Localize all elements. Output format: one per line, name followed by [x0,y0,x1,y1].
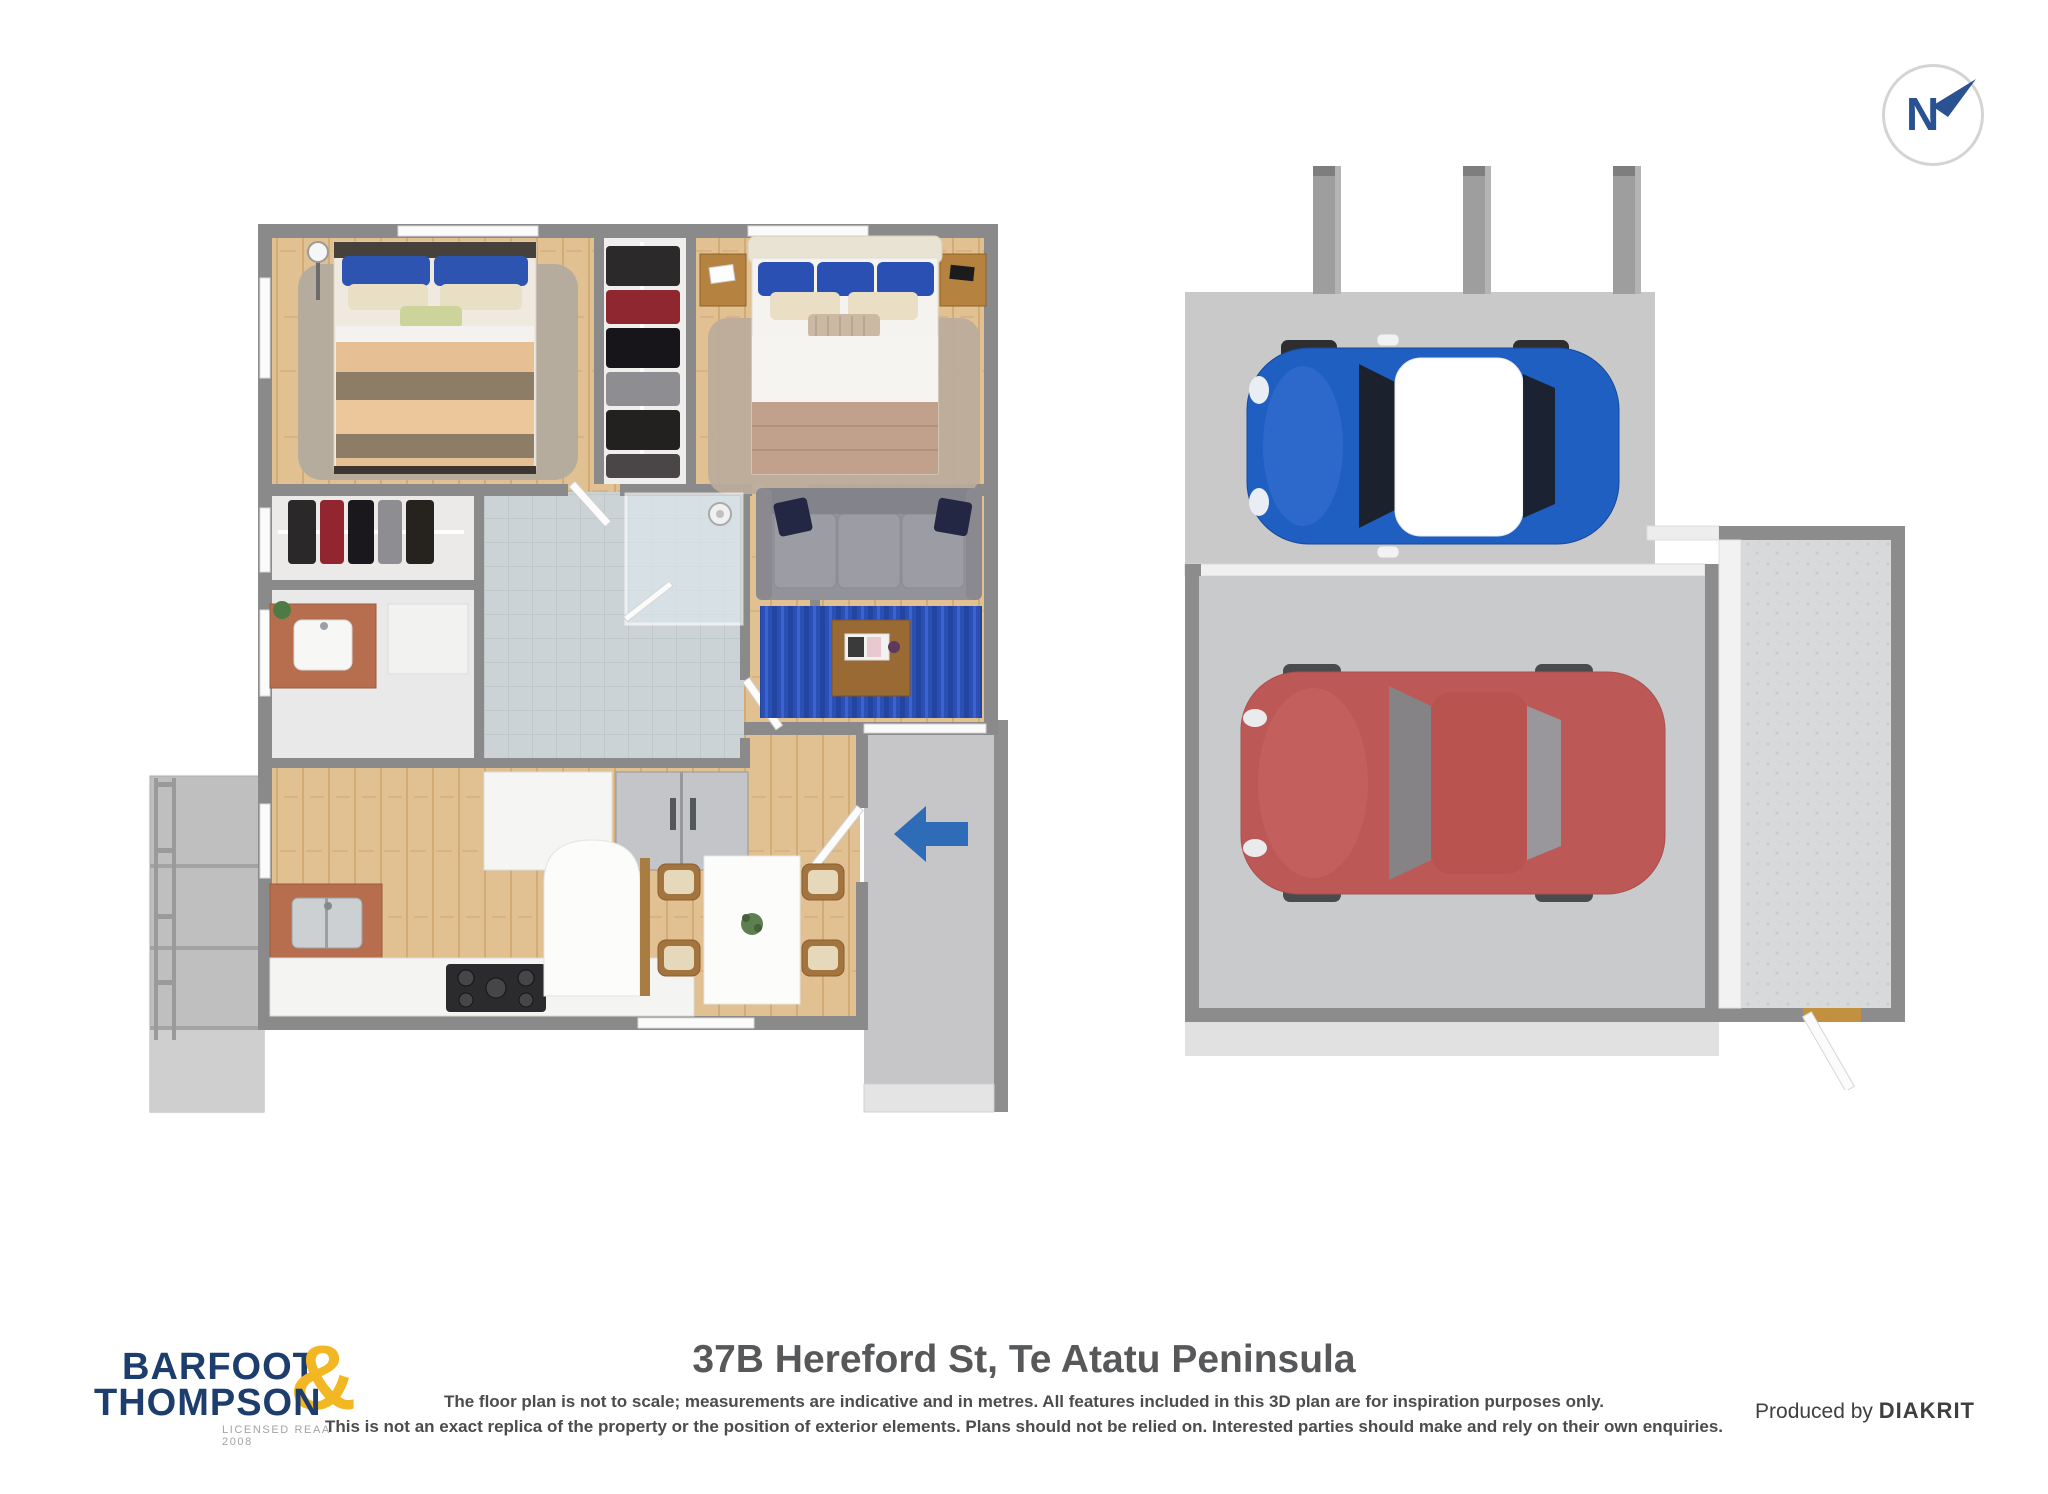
carport-pillars [1313,166,1641,294]
sofa [756,488,982,600]
bedroom2 [700,236,986,494]
producer-name: DIAKRIT [1879,1398,1975,1423]
deck-stairs [150,776,264,1112]
bedroom1-bed [334,242,536,474]
garage-plan [1163,158,1925,1090]
entry-porch [864,720,1008,1112]
vanity-sink [270,601,376,688]
dining-chair [658,864,700,900]
dining-chair [802,940,844,976]
pillar [1613,166,1641,294]
compass: N [1882,64,1984,166]
dining-chair [802,864,844,900]
dining-table [704,856,800,1004]
bedside-table-right [940,254,986,306]
disclaimer-line2: This is not an exact replica of the prop… [224,1417,1824,1437]
kitchen-island [544,840,650,996]
red-car [1241,664,1665,902]
house-floor-plan [148,158,1060,1140]
property-address-title: 37B Hereford St, Te Atatu Peninsula [324,1338,1724,1382]
bathroom [624,494,742,624]
kitchen-sink-counter [270,884,382,960]
dining-chair [658,940,700,976]
pillar [1313,166,1341,294]
refrigerator [616,772,748,870]
bedroom1 [298,242,578,480]
mini-car [1247,334,1619,558]
produced-by: Produced by DIAKRIT [1680,1398,1975,1424]
coffee-table [832,620,910,696]
closet-clothes [606,242,680,478]
floorplan-page: N [0,0,2048,1494]
produced-by-label: Produced by [1755,1400,1873,1423]
cooktop [446,964,546,1012]
pillar [1463,166,1491,294]
bedside-table-left [700,254,746,306]
compass-arrow-icon [1932,79,1978,123]
shower [624,494,742,624]
storage-door [1803,1012,1855,1090]
laundry-bench [388,604,468,674]
disclaimer-line1: The floor plan is not to scale; measurem… [224,1392,1824,1412]
bedroom2-bed [748,236,942,474]
